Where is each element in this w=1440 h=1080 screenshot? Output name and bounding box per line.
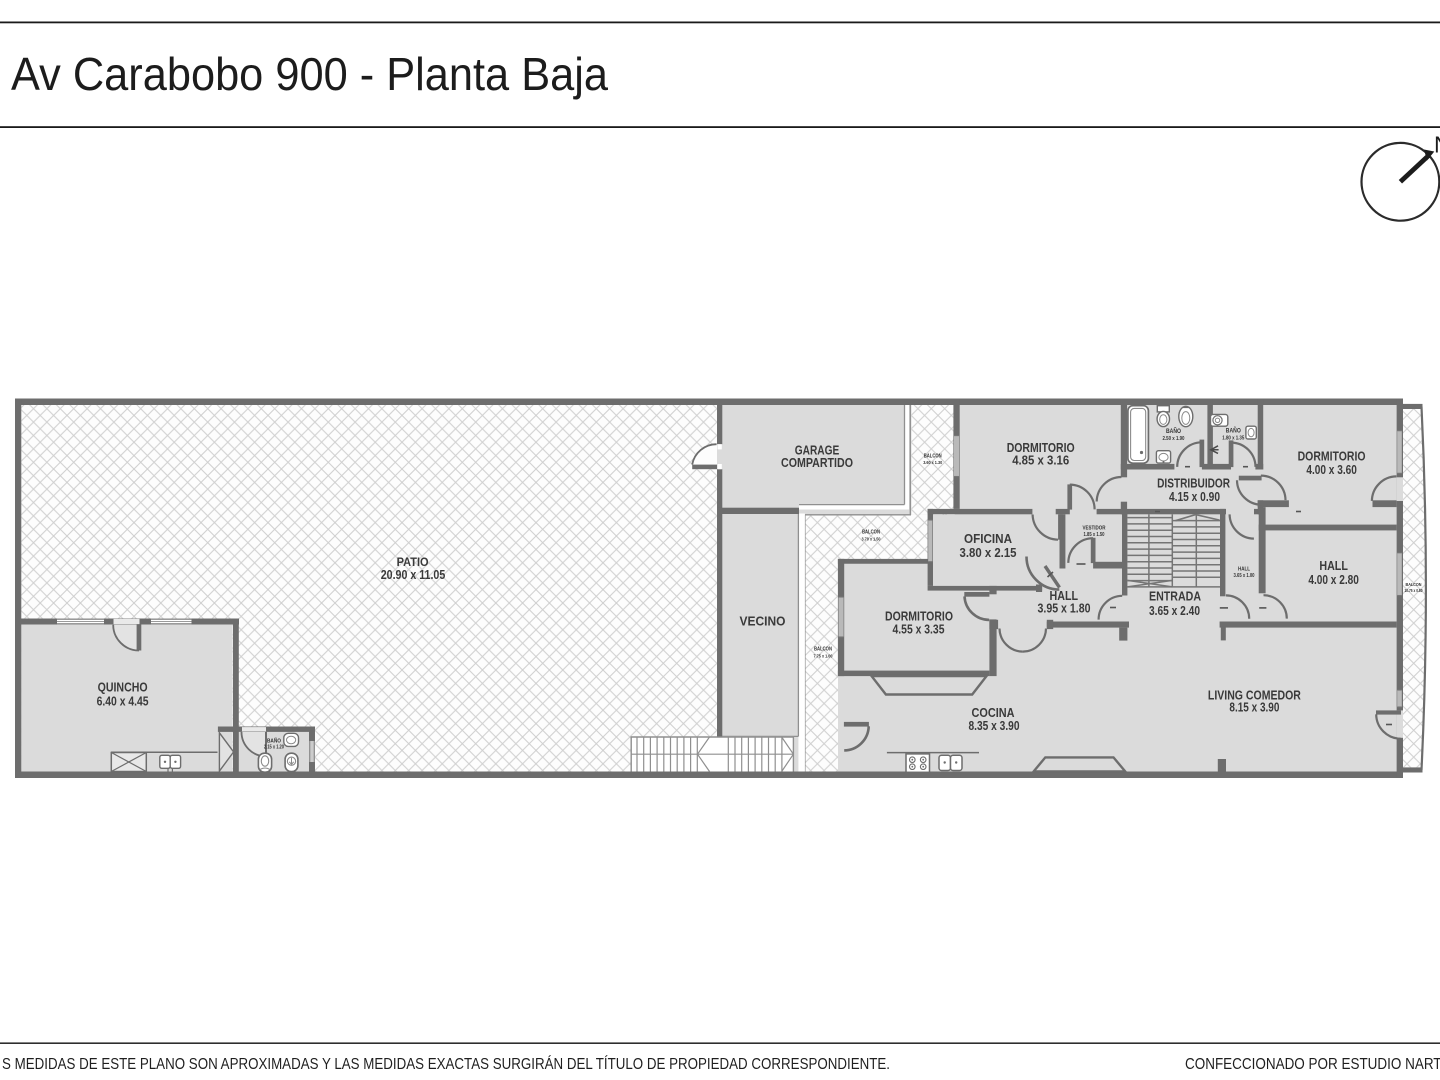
- svg-text:10.75 x 0.80: 10.75 x 0.80: [1405, 588, 1424, 593]
- svg-text:BALCON: BALCON: [924, 454, 942, 460]
- svg-text:BALCON: BALCON: [814, 647, 832, 653]
- svg-text:3.95 x 1.80: 3.95 x 1.80: [1038, 602, 1091, 616]
- svg-text:HALL: HALL: [1238, 567, 1251, 573]
- svg-text:3.65 x 1.00: 3.65 x 1.00: [1234, 573, 1255, 579]
- svg-text:CONFECCIONADO POR ESTUDIO NART: CONFECCIONADO POR ESTUDIO NARTALLO: [1185, 1056, 1440, 1073]
- svg-text:8.15 x 3.90: 8.15 x 3.90: [1229, 701, 1279, 715]
- svg-text:BALCON: BALCON: [1406, 582, 1423, 587]
- svg-text:8.35 x 3.90: 8.35 x 3.90: [969, 719, 1020, 733]
- svg-text:3.70 x 1.50: 3.70 x 1.50: [862, 537, 881, 543]
- svg-text:S MEDIDAS DE ESTE PLANO SON A: S MEDIDAS DE ESTE PLANO SON APROXIMADAS …: [2, 1056, 890, 1073]
- svg-text:COCINA: COCINA: [972, 706, 1015, 720]
- svg-text:1.85 x 1.50: 1.85 x 1.50: [1084, 532, 1105, 538]
- svg-text:HALL: HALL: [1319, 559, 1348, 573]
- svg-text:3.80 x 2.15: 3.80 x 2.15: [960, 546, 1017, 560]
- svg-text:4.00 x 2.80: 4.00 x 2.80: [1308, 573, 1359, 587]
- svg-text:BALCON: BALCON: [862, 530, 880, 536]
- svg-text:BAÑO: BAÑO: [267, 738, 282, 745]
- svg-text:4.85 x 3.16: 4.85 x 3.16: [1012, 454, 1069, 468]
- svg-text:ENTRADA: ENTRADA: [1149, 590, 1201, 604]
- svg-text:VECINO: VECINO: [740, 615, 786, 629]
- svg-text:N: N: [1434, 132, 1440, 158]
- svg-text:4.00 x 3.60: 4.00 x 3.60: [1306, 463, 1357, 477]
- svg-text:DISTRIBUIDOR: DISTRIBUIDOR: [1157, 477, 1230, 491]
- svg-text:2.50 x 1.90: 2.50 x 1.90: [1163, 436, 1185, 442]
- svg-text:3.60 x 1.30: 3.60 x 1.30: [923, 460, 942, 466]
- svg-text:Av Carabobo 900 - Planta Baja: Av Carabobo 900 - Planta Baja: [11, 48, 608, 100]
- svg-text:3.65 x 2.40: 3.65 x 2.40: [1149, 604, 1200, 618]
- svg-text:BAÑO: BAÑO: [1166, 428, 1181, 435]
- svg-text:6.40 x 4.45: 6.40 x 4.45: [97, 695, 149, 709]
- svg-text:20.90 x 11.05: 20.90 x 11.05: [381, 568, 446, 582]
- svg-text:DORMITORIO: DORMITORIO: [1298, 449, 1366, 463]
- svg-text:DORMITORIO: DORMITORIO: [885, 610, 953, 624]
- svg-text:1.80 x 1.35: 1.80 x 1.35: [1222, 436, 1244, 442]
- svg-text:BAÑO: BAÑO: [1226, 428, 1241, 435]
- svg-text:OFICINA: OFICINA: [964, 532, 1012, 546]
- svg-text:2.15 x 1.20: 2.15 x 1.20: [264, 745, 284, 751]
- svg-text:COMPARTIDO: COMPARTIDO: [781, 456, 853, 470]
- svg-text:4.15 x 0.90: 4.15 x 0.90: [1169, 490, 1220, 504]
- svg-text:4.55 x 3.35: 4.55 x 3.35: [893, 623, 945, 637]
- svg-text:7.75 x 1.00: 7.75 x 1.00: [814, 654, 833, 660]
- svg-text:VESTIDOR: VESTIDOR: [1083, 526, 1106, 532]
- svg-text:QUINCHO: QUINCHO: [98, 681, 148, 695]
